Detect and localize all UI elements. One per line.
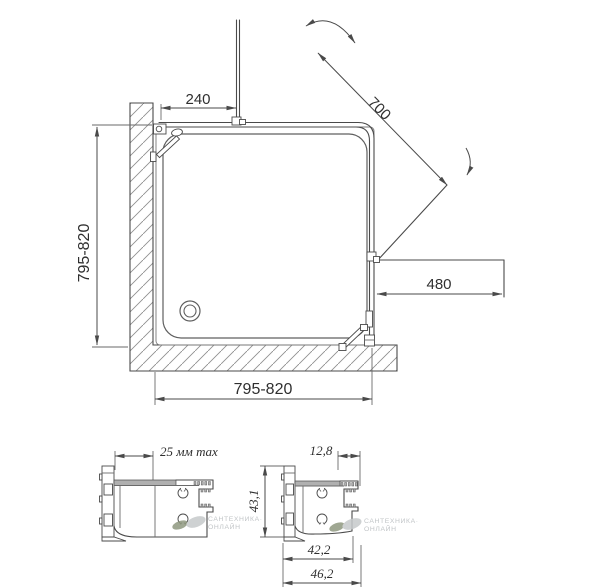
watermark-text: САНТЕХНИКА· — [208, 516, 263, 523]
door-swing-arc-icon — [306, 21, 355, 43]
dim-label-side-depth: 795-820 — [76, 224, 93, 283]
dim-label-46-2: 46,2 — [311, 566, 334, 581]
leaf-icon — [185, 514, 207, 530]
profile-detail-left: 25 мм max — [100, 444, 218, 541]
watermark-text: САНТЕХНИКА· — [364, 518, 419, 525]
dim-label-12-8: 12,8 — [310, 443, 333, 458]
door-open-90-line — [232, 20, 246, 125]
drain-icon — [180, 301, 200, 321]
watermark-text: ОНЛАЙН — [364, 524, 397, 533]
entry-width-group: 480 — [367, 252, 504, 297]
comb-teeth-top — [194, 482, 210, 486]
dim-label-700: 700 — [364, 94, 394, 124]
dim-label-25mm: 25 мм max — [160, 444, 218, 459]
door-swing-arc-small-icon — [466, 148, 470, 175]
dim-label-480: 480 — [426, 276, 451, 293]
dim-label-43-1: 43,1 — [246, 490, 261, 513]
dim-label-front-width: 795-820 — [234, 381, 293, 398]
drawing-canvas: 700 480 240 795-820 — [0, 0, 600, 588]
watermark-right: САНТЕХНИКА· ОНЛАЙН — [328, 516, 418, 534]
dim-label-42-2: 42,2 — [308, 542, 331, 557]
screw-boss — [178, 487, 188, 525]
dim-240-group: 240 — [161, 91, 236, 120]
wall-profile-bar — [284, 466, 295, 537]
comb-teeth-notch — [201, 489, 210, 507]
screw-boss — [317, 487, 327, 525]
profile-detail-right: 12,8 43,1 — [246, 443, 361, 587]
technical-drawing-page: 700 480 240 795-820 — [0, 0, 600, 588]
shower-tray — [156, 127, 374, 345]
floor-bracket — [365, 335, 375, 346]
comb-teeth-top — [341, 483, 357, 487]
watermark-text: ОНЛАЙН — [208, 522, 241, 531]
dim-label-240: 240 — [185, 91, 210, 108]
comb-teeth-notch — [346, 489, 355, 507]
